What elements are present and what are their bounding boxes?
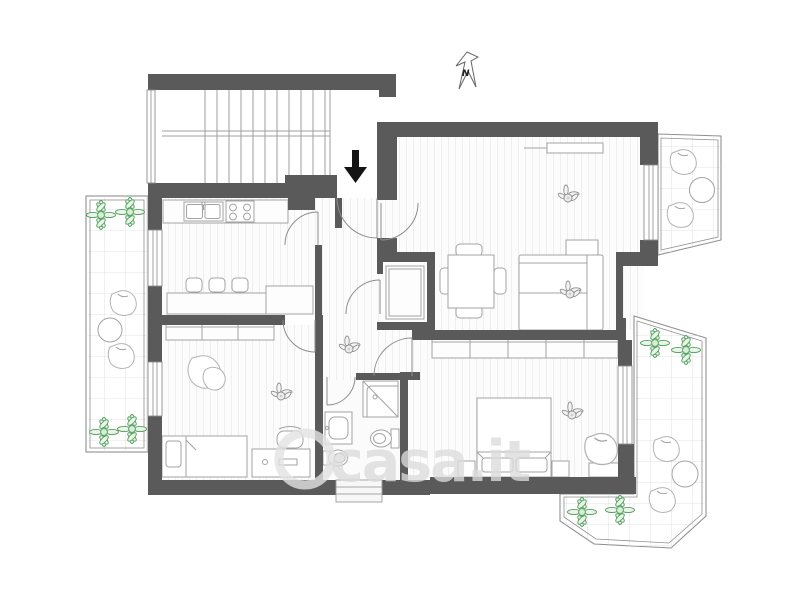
- pillow: [166, 441, 181, 467]
- window-bedroom-small: [148, 362, 162, 416]
- balcony-table: [690, 178, 715, 203]
- armchair: [585, 434, 618, 465]
- window-bedroom-main-balcony: [618, 366, 632, 444]
- wall-kitchen-east: [315, 245, 322, 315]
- balcony-chair: [670, 150, 696, 175]
- bar-stool: [186, 278, 202, 292]
- window-kitchen: [148, 230, 162, 286]
- wall-right: [618, 340, 632, 366]
- wall-notch: [285, 175, 337, 183]
- wall-kitchen-jamb: [288, 198, 315, 210]
- balcony-table: [672, 461, 698, 487]
- sink-icon: [184, 202, 223, 221]
- window-living-balcony: [644, 165, 658, 240]
- wall-living-west: [377, 238, 397, 252]
- wall-right: [640, 240, 658, 254]
- wall-stair-bottom: [148, 183, 337, 198]
- balcony-left: [86, 196, 148, 452]
- wall-top-living: [377, 122, 658, 137]
- kitchen-peninsula: [167, 293, 266, 314]
- wall-closet-bottom: [377, 322, 435, 330]
- stove-icon: [226, 201, 254, 222]
- wall-right: [618, 444, 634, 477]
- wall-closet-top: [377, 252, 435, 262]
- balcony-chair: [667, 203, 693, 228]
- closet-floor: [383, 262, 427, 322]
- north-arrow-icon: N: [456, 52, 478, 89]
- wall-left: [148, 416, 162, 480]
- watermark-text: casa.it: [330, 429, 530, 495]
- wall-bedroom-main-top: [412, 330, 624, 340]
- north-label: N: [462, 69, 470, 79]
- wall-closet-east: [427, 262, 435, 322]
- balcony-chair: [649, 488, 675, 513]
- wall-bedroom-small-top: [162, 315, 285, 325]
- bar-stool: [209, 278, 225, 292]
- balcony-chair: [110, 291, 136, 316]
- wall-right: [616, 266, 623, 318]
- closet: [383, 262, 427, 322]
- balcony-chair: [653, 437, 679, 462]
- dining-chair: [456, 244, 482, 256]
- kitchen-counter-corner: [266, 286, 313, 314]
- bed-single: [162, 436, 247, 477]
- balcony-chair: [108, 344, 134, 369]
- dining-table: [448, 255, 494, 308]
- floor-plan-canvas: N casa.it: [0, 0, 800, 600]
- wall-right: [640, 137, 658, 165]
- wall-right-step: [616, 252, 658, 266]
- balcony-table: [98, 318, 122, 342]
- wall-entry-stub: [335, 198, 342, 228]
- wall-left: [148, 198, 162, 230]
- wall-stair-top: [148, 74, 396, 90]
- balcony-top-right: [650, 128, 730, 263]
- wall-left: [148, 286, 162, 362]
- wall-corner: [400, 372, 420, 380]
- wall-hall-west: [315, 315, 323, 480]
- nightstand: [552, 461, 569, 477]
- window-stairwell: [147, 90, 155, 183]
- bar-stool: [232, 278, 248, 292]
- dining-chair: [494, 268, 506, 294]
- wall-closet-jamb: [377, 262, 383, 274]
- wall-entry-right: [377, 137, 397, 200]
- wall-notch: [379, 90, 396, 97]
- floor-plan-image: N casa.it: [0, 0, 800, 600]
- shower: [363, 381, 398, 417]
